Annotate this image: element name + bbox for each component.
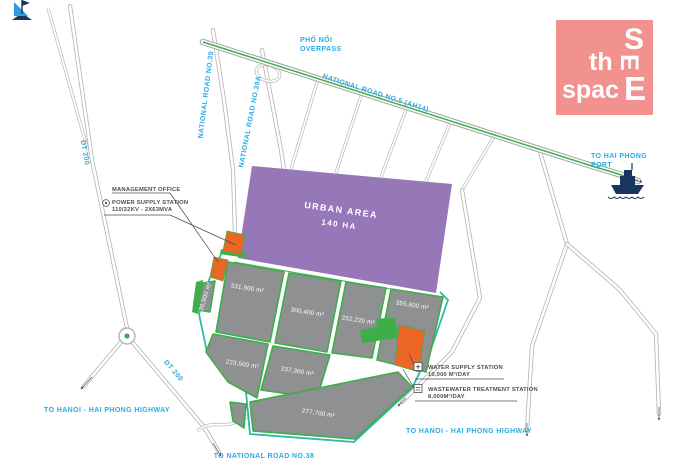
to-hai-phong-port-label-2: PORT	[591, 162, 612, 169]
roundabout	[119, 328, 135, 344]
north-compass-icon	[0, 0, 44, 24]
to-hanoi-east-label: TO HANOI - HAI PHONG HIGHWAY	[406, 428, 532, 435]
power-station-label: POWER SUPPLY STATION	[112, 200, 188, 206]
water-station-label-2: 10,000 M³/DAY	[428, 371, 470, 378]
wastewater-station-label-2: 8,000M³/DAY	[428, 393, 465, 400]
logo-letters-spac: spac	[562, 78, 619, 103]
national-road-39a-label: NATIONAL ROAD NO.39A	[238, 75, 263, 168]
logo-letter-e-mid: E	[616, 54, 641, 71]
water-station-label: WATER SUPPLY STATION	[428, 365, 503, 371]
road-national-39	[213, 30, 235, 232]
wastewater-station-label: WASTEWATER TREATMENT STATION	[428, 387, 538, 393]
to-hai-phong-port-label: TO HAI PHONG	[591, 153, 647, 160]
wastewater-station-icon	[414, 385, 422, 393]
management-office-block	[223, 231, 245, 255]
national-road-39-label: NATIONAL ROAD NO.39	[198, 51, 216, 139]
masterplan-map: PHỐ NỐI OVERPASS NATIONAL ROAD NO.5 (AH1…	[0, 0, 674, 474]
road-far-east	[567, 244, 659, 414]
the-space-logo: S th E spac E	[556, 20, 653, 115]
to-hanoi-west-label: TO HANOI - HAI PHONG HIGHWAY	[44, 407, 170, 414]
power-station-label-2: 110/22KV - 2X63MVA	[112, 207, 173, 213]
arrow-to-hanoi-west	[81, 377, 92, 389]
road-dt200-north	[70, 6, 127, 328]
logo-letter-e-end: E	[624, 72, 646, 105]
logo-letters-th: th	[589, 50, 613, 75]
national-road-5-label: NATIONAL ROAD NO.5 (AH14)	[322, 73, 430, 113]
logo-letter-s: S	[624, 25, 644, 55]
to-national-road-38-label: TO NATIONAL ROAD NO.38	[214, 453, 315, 460]
parcel-1	[216, 262, 284, 342]
pho-noi-label: PHỐ NỐI	[300, 34, 332, 44]
pho-noi-label-2: OVERPASS	[300, 46, 342, 53]
management-office-label: MANAGEMENT OFFICE	[112, 187, 180, 193]
